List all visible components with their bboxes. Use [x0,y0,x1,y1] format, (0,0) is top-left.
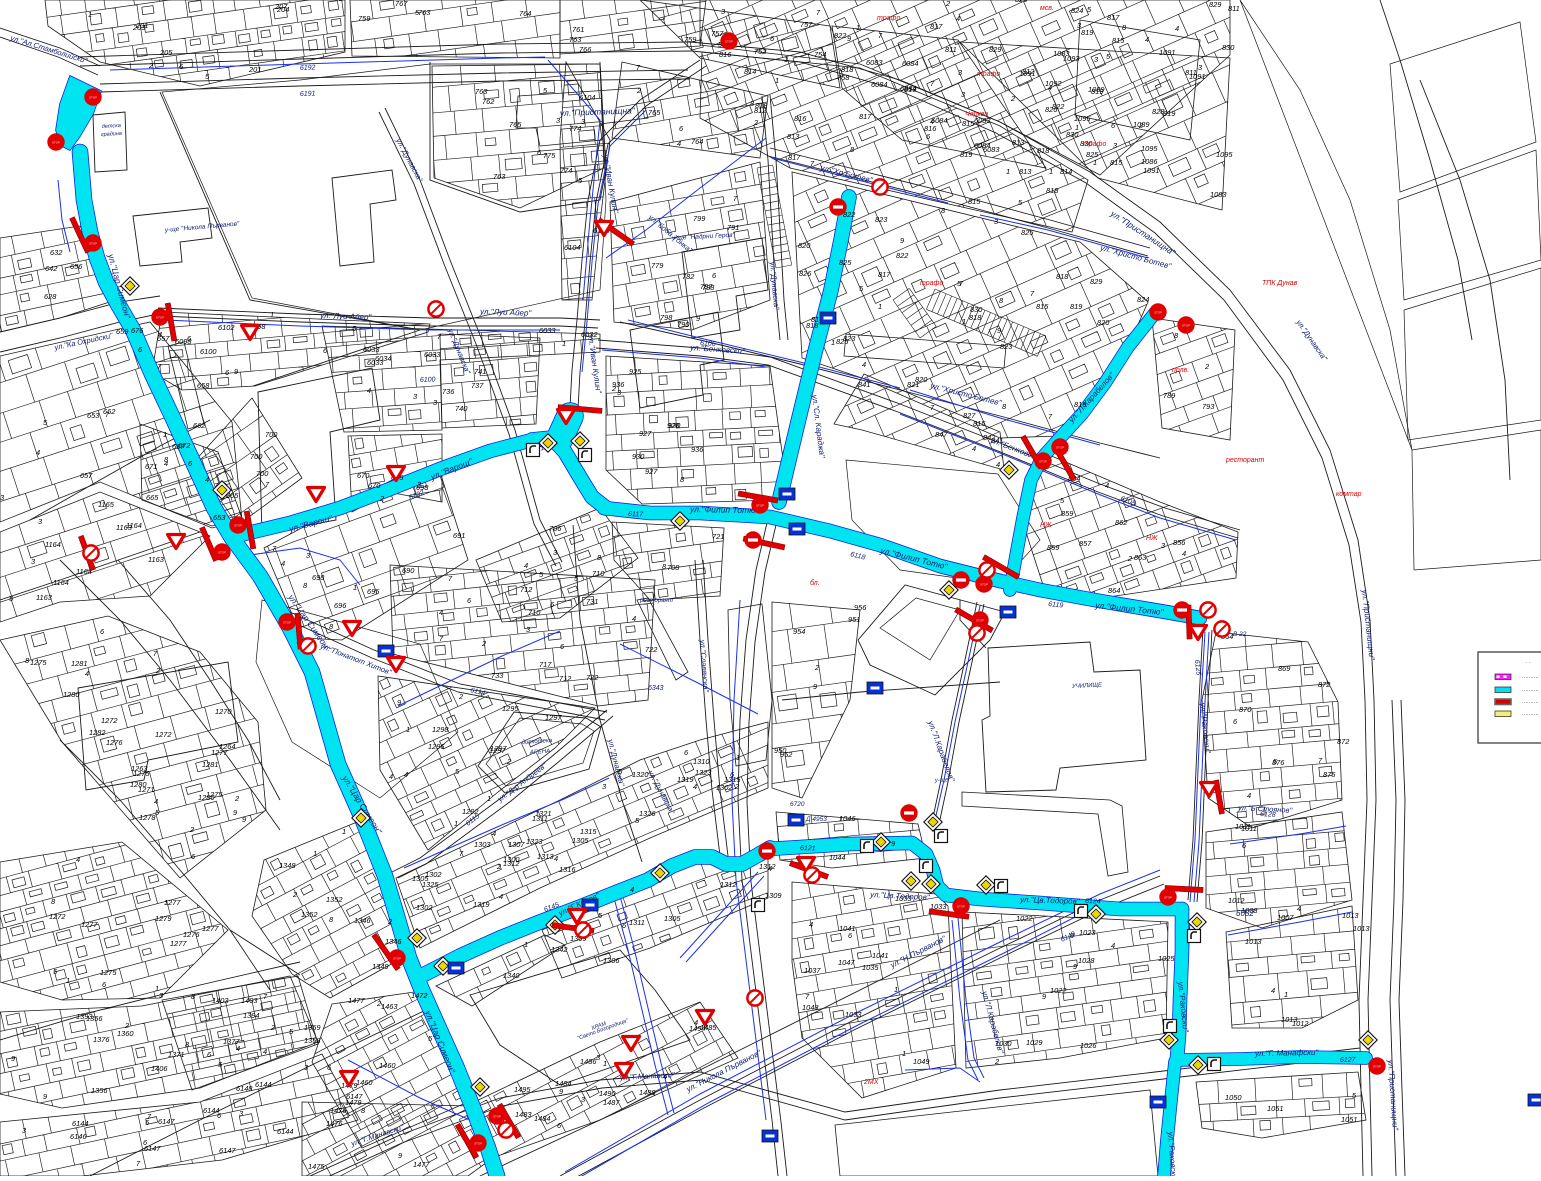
svg-text:205: 205 [159,48,173,57]
svg-text:6147: 6147 [219,1146,236,1155]
svg-text:1487: 1487 [603,1098,620,1107]
svg-text:1165: 1165 [98,500,115,509]
svg-text:1028: 1028 [1078,956,1095,965]
svg-text:4: 4 [281,559,285,568]
svg-text:1358: 1358 [304,1036,321,1045]
svg-text:2: 2 [994,1057,999,1066]
svg-text:9: 9 [847,34,851,43]
svg-text:2: 2 [496,862,501,871]
svg-text:4: 4 [263,1047,267,1056]
svg-text:1460: 1460 [356,1078,373,1087]
svg-text:798: 798 [660,313,673,322]
svg-text:763: 763 [475,87,488,96]
svg-text:863: 863 [1134,553,1147,562]
svg-text:1164: 1164 [45,540,61,549]
svg-text:1: 1 [1093,158,1097,167]
svg-text:789: 789 [1163,391,1175,400]
svg-text:722: 722 [586,673,598,682]
svg-text:670: 670 [357,471,370,480]
svg-text:1346: 1346 [354,916,371,925]
svg-text:816: 816 [719,50,732,59]
svg-text:793: 793 [1202,402,1215,411]
svg-text:6146: 6146 [70,1132,87,1141]
svg-text:1394: 1394 [243,1011,259,1020]
svg-text:1041: 1041 [839,924,855,933]
svg-text:STOP: STOP [218,550,226,554]
svg-text:1022: 1022 [1016,914,1032,923]
svg-text:690: 690 [402,566,415,575]
svg-text:ресторант: ресторант [1225,457,1264,464]
svg-text:6720: 6720 [790,801,805,808]
svg-text:1479: 1479 [345,1098,361,1107]
svg-text:ТПК Дунав: ТПК Дунав [1262,280,1298,287]
svg-text:954: 954 [793,627,805,636]
svg-text:STOP: STOP [1373,1064,1381,1068]
svg-text:4: 4 [389,772,393,781]
svg-text:1276: 1276 [106,738,123,747]
svg-text:1: 1 [88,10,92,19]
svg-text:1049: 1049 [913,1057,929,1066]
svg-text:1312: 1312 [720,880,736,889]
svg-text:764: 764 [519,9,531,18]
svg-text:722: 722 [645,645,657,654]
svg-text:201: 201 [248,65,261,74]
svg-text:1: 1 [1284,990,1288,999]
svg-text:731: 731 [586,597,598,606]
svg-text:6128: 6128 [1260,811,1276,819]
svg-text:4: 4 [367,386,371,395]
svg-text:1495: 1495 [514,1085,531,1094]
svg-text:1033: 1033 [845,1010,862,1019]
svg-text:1: 1 [775,76,779,85]
svg-text:4: 4 [492,829,496,838]
svg-text:STOP: STOP [1039,459,1047,463]
svg-text:STOP: STOP [52,140,60,144]
svg-text:799: 799 [693,214,705,223]
svg-text:815: 815 [1112,36,1125,45]
svg-text:9: 9 [234,367,238,376]
svg-text:1348: 1348 [279,861,296,870]
svg-text:1342: 1342 [551,945,567,954]
svg-text:774: 774 [569,124,581,133]
svg-text:2: 2 [814,663,819,672]
svg-text:825: 825 [1021,228,1034,237]
svg-text:2: 2 [376,999,381,1008]
svg-text:1164: 1164 [76,567,92,576]
svg-text:759: 759 [358,14,370,23]
svg-text:819: 819 [960,150,972,159]
svg-text:829: 829 [1090,277,1102,286]
svg-text:ул."Луи Айер": ул."Луи Айер" [479,307,533,318]
svg-text:856: 856 [1173,538,1186,547]
svg-text:815: 815 [973,419,986,428]
svg-text:4: 4 [1111,941,1115,950]
svg-text:817: 817 [878,270,891,279]
svg-text:4: 4 [630,885,634,894]
svg-text:6084: 6084 [871,80,887,89]
svg-text:752: 752 [754,47,766,56]
svg-text:··········: ·········· [1522,688,1539,694]
svg-text:STOP: STOP [1182,323,1190,327]
svg-text:1275: 1275 [100,968,117,977]
svg-text:817: 817 [788,153,801,162]
svg-text:1323: 1323 [526,837,543,846]
svg-text:··········: ·········· [1522,712,1539,718]
svg-text:1095: 1095 [1216,150,1233,159]
svg-text:1403: 1403 [241,996,258,1005]
svg-text:820: 820 [798,241,811,250]
svg-text:1277: 1277 [81,920,98,929]
svg-text:4: 4 [694,1018,698,1027]
svg-text:712: 712 [520,585,532,594]
svg-text:820: 820 [1097,318,1110,327]
svg-text:6033: 6033 [539,326,556,335]
svg-text:9: 9 [891,839,895,848]
svg-text:1047: 1047 [838,958,855,967]
svg-text:665: 665 [146,493,159,502]
svg-text:1460: 1460 [379,1061,396,1070]
svg-text:1163: 1163 [148,555,165,564]
svg-text:1083: 1083 [1210,190,1227,199]
svg-text:700: 700 [256,469,269,478]
svg-text:737: 737 [471,381,484,390]
svg-text:790: 790 [677,320,690,329]
svg-text:бл.: бл. [810,579,820,587]
svg-text:1277: 1277 [202,924,219,933]
svg-text:847: 847 [935,430,948,439]
svg-text:813: 813 [1019,167,1032,176]
svg-text:733: 733 [491,671,504,680]
svg-text:706: 706 [549,524,562,533]
svg-text:1083: 1083 [1053,49,1070,58]
svg-text:830: 830 [1066,130,1079,139]
svg-text:1486: 1486 [580,1057,597,1066]
svg-text:6117: 6117 [628,511,644,519]
svg-text:1302: 1302 [716,783,732,792]
svg-text:712: 712 [559,674,571,683]
svg-text:STOP: STOP [957,904,965,908]
svg-text:STOP: STOP [393,956,401,960]
svg-text:710: 710 [528,608,541,617]
svg-text:6343: 6343 [648,685,664,692]
svg-text:9: 9 [696,314,700,323]
svg-text:761: 761 [572,25,584,34]
svg-text:821: 821 [907,380,919,389]
svg-text:STOP: STOP [1056,445,1064,449]
svg-text:830: 830 [970,305,983,314]
svg-text:754: 754 [814,50,826,59]
svg-text:1272: 1272 [49,912,65,921]
svg-text:STOP: STOP [283,620,291,624]
svg-text:6033: 6033 [424,350,441,359]
svg-text:1463: 1463 [381,1002,398,1011]
svg-text:1472: 1472 [411,991,427,1000]
svg-text:6121: 6121 [800,845,816,852]
svg-text:2: 2 [189,825,194,834]
svg-text:817: 817 [1107,13,1120,22]
svg-text:823: 823 [1000,342,1013,351]
svg-text:1012: 1012 [1228,896,1244,905]
svg-text:1484: 1484 [534,1114,550,1123]
svg-text:6144: 6144 [255,1080,271,1089]
svg-text:9: 9 [11,1054,15,1063]
svg-text:1007: 1007 [1277,913,1294,922]
svg-text:1046: 1046 [839,814,856,823]
svg-text:STOP: STOP [980,582,988,586]
svg-text:1048: 1048 [802,1003,819,1012]
svg-text:2: 2 [1138,121,1143,130]
svg-text:1280: 1280 [198,793,215,802]
svg-text:1280: 1280 [63,690,80,699]
svg-text:··········: ·········· [1522,700,1539,706]
svg-text:4: 4 [36,448,40,457]
svg-text:4: 4 [236,1044,240,1053]
svg-text:766: 766 [579,45,592,54]
svg-text:816: 816 [794,114,807,123]
svg-text:815: 815 [1110,158,1123,167]
svg-text:763: 763 [418,8,431,17]
svg-text:9: 9 [1073,962,1077,971]
svg-text:1272: 1272 [155,730,171,739]
svg-text:2: 2 [270,1023,275,1032]
svg-text:2: 2 [1127,554,1132,563]
svg-text:1025: 1025 [1158,954,1175,963]
svg-text:1091: 1091 [1143,166,1159,175]
svg-text:1091: 1091 [1189,72,1205,81]
svg-text:1477: 1477 [348,996,365,1005]
svg-text:1277: 1277 [170,939,187,948]
svg-text:759: 759 [684,35,696,44]
svg-text:9: 9 [900,236,904,245]
svg-text:764: 764 [691,137,703,146]
svg-text:4: 4 [956,14,960,23]
svg-text:1346: 1346 [385,937,402,946]
svg-text:1: 1 [784,55,788,64]
svg-text:6144: 6144 [277,1127,293,1136]
svg-text:1305: 1305 [412,874,429,883]
svg-text:1313: 1313 [537,852,554,861]
svg-text:1: 1 [163,430,167,439]
svg-text:817: 817 [859,112,872,121]
svg-text:1: 1 [878,302,882,311]
svg-text:201: 201 [135,21,148,30]
svg-text:1: 1 [894,985,898,994]
svg-text:1044: 1044 [829,853,845,862]
svg-text:1488: 1488 [639,1088,656,1097]
svg-text:765: 765 [648,108,661,117]
svg-text:818: 818 [1037,146,1050,155]
svg-text:1306: 1306 [603,956,620,965]
svg-text:2: 2 [611,384,616,393]
svg-text:762: 762 [482,97,494,106]
svg-text:857: 857 [1079,539,1092,548]
svg-text:775: 775 [543,151,556,160]
svg-text:717: 717 [539,660,552,669]
svg-text:1316: 1316 [559,865,576,874]
svg-text:1305: 1305 [572,836,589,845]
svg-text:1319: 1319 [473,900,489,909]
svg-text:813: 813 [1012,138,1025,147]
svg-text:2: 2 [636,86,641,95]
svg-text:1: 1 [342,827,346,836]
svg-text:2: 2 [379,494,384,503]
svg-text:1281: 1281 [202,760,218,769]
svg-text:765: 765 [509,120,522,129]
svg-text:6144: 6144 [72,1119,88,1128]
svg-text:2: 2 [506,757,511,766]
svg-text:6106: 6106 [700,340,716,348]
svg-text:826: 826 [799,269,812,278]
svg-text:672: 672 [178,441,190,450]
svg-text:6191: 6191 [300,90,316,98]
svg-text:2: 2 [458,692,463,701]
svg-text:6147: 6147 [158,1117,175,1126]
svg-text:695: 695 [367,587,380,596]
svg-text:628: 628 [44,292,57,301]
svg-text:813: 813 [787,132,800,141]
svg-text:758: 758 [837,73,850,82]
svg-text:1011: 1011 [1235,822,1251,831]
svg-text:2: 2 [155,666,160,675]
svg-text:4: 4 [972,444,976,453]
svg-text:757: 757 [800,20,813,29]
svg-text:1163: 1163 [36,593,53,602]
svg-text:818: 818 [1046,186,1059,195]
svg-text:657: 657 [80,471,93,480]
svg-text:741: 741 [474,367,486,376]
svg-text:Черква: Черква [965,111,988,118]
svg-text:трафо: трафо [920,280,943,287]
svg-text:Д 4953: Д 4953 [805,816,827,823]
svg-text:864: 864 [1108,586,1120,595]
svg-text:1: 1 [66,976,70,985]
svg-text:829: 829 [1209,0,1221,9]
svg-text:4: 4 [554,854,558,863]
svg-text:925: 925 [629,367,642,376]
svg-text:658: 658 [197,381,210,390]
svg-text:2: 2 [124,1021,129,1030]
svg-text:4: 4 [76,855,80,864]
svg-text:9: 9 [997,326,1001,335]
svg-text:788: 788 [702,283,715,292]
svg-text:1264: 1264 [219,742,235,751]
svg-text:STOP: STOP [493,1114,501,1118]
svg-text:1311: 1311 [629,918,645,927]
svg-text:6084: 6084 [931,116,947,125]
svg-text:4: 4 [1297,904,1301,913]
svg-text:4: 4 [85,669,89,678]
svg-text:4: 4 [205,475,209,484]
svg-text:1163: 1163 [116,523,133,532]
svg-text:841: 841 [858,380,870,389]
svg-text:9: 9 [242,815,246,824]
svg-text:642: 642 [45,264,57,273]
svg-text:1051: 1051 [1267,1104,1283,1113]
svg-text:9: 9 [233,808,237,817]
svg-text:827: 827 [963,411,976,420]
svg-text:1275: 1275 [133,769,150,778]
svg-text:1: 1 [736,753,740,762]
svg-text:1312: 1312 [503,859,519,868]
svg-text:9: 9 [1042,992,1046,1001]
svg-text:1310: 1310 [693,757,710,766]
svg-text:1309: 1309 [765,891,781,900]
svg-text:2: 2 [148,61,153,70]
svg-text:736: 736 [442,387,455,396]
svg-text:2: 2 [234,794,239,803]
svg-text:1023: 1023 [1079,928,1096,937]
svg-text:1279: 1279 [155,914,171,923]
svg-text:4: 4 [1145,35,1149,44]
svg-text:1272: 1272 [101,716,117,725]
svg-text:659: 659 [116,327,128,336]
svg-text:1280: 1280 [130,780,147,789]
svg-text:4: 4 [1105,481,1109,490]
svg-text:930: 930 [632,452,645,461]
svg-text:1302: 1302 [416,903,432,912]
svg-text:1319: 1319 [677,775,693,784]
svg-text:1475: 1475 [308,1162,325,1171]
svg-text:819: 819 [1081,28,1093,37]
svg-text:875: 875 [1323,770,1336,779]
svg-text:1: 1 [562,339,566,348]
svg-text:829: 829 [989,45,1001,54]
svg-text:1371: 1371 [168,1050,184,1059]
svg-text:4: 4 [524,561,528,570]
svg-text:1321: 1321 [535,809,551,818]
svg-text:STOP: STOP [976,618,984,622]
svg-text:872: 872 [1337,737,1349,746]
svg-text:791: 791 [727,223,739,232]
svg-text:4: 4 [632,614,636,623]
svg-text:6144: 6144 [203,1106,219,1115]
svg-text:НЖ: НЖ [1146,535,1158,542]
svg-text:936: 936 [691,445,704,454]
svg-text:ресторант: ресторант [639,598,673,604]
svg-text:6084: 6084 [902,59,918,68]
svg-text:691: 691 [453,531,465,540]
svg-text:823: 823 [843,334,856,343]
svg-text:951: 951 [848,615,860,624]
svg-text:819: 819 [1070,302,1082,311]
svg-text:1051: 1051 [1341,1115,1357,1124]
svg-text:1029: 1029 [1026,1038,1042,1047]
svg-text:1323: 1323 [695,768,712,777]
svg-text:1406: 1406 [151,1064,168,1073]
svg-text:818: 818 [1056,272,1069,281]
svg-text:811: 811 [1228,4,1240,13]
svg-text:4: 4 [862,360,866,369]
svg-text:4: 4 [404,770,408,779]
svg-text:6100: 6100 [200,347,217,356]
svg-text:4: 4 [768,864,772,873]
svg-text:6102: 6102 [218,323,234,332]
svg-text:1: 1 [270,310,274,319]
svg-text:822: 822 [834,31,846,40]
svg-text:1276: 1276 [183,930,200,939]
svg-text:1: 1 [831,338,835,347]
svg-text:708: 708 [667,563,680,572]
svg-text:1303: 1303 [474,840,491,849]
svg-text:6147: 6147 [144,1144,161,1153]
svg-text:4: 4 [677,139,681,148]
svg-text:656: 656 [70,262,83,271]
svg-text:696: 696 [334,601,347,610]
svg-text:6083: 6083 [866,58,883,67]
svg-text:2: 2 [1010,94,1015,103]
svg-text:662: 662 [103,407,115,416]
svg-text:STOP: STOP [1154,310,1162,314]
